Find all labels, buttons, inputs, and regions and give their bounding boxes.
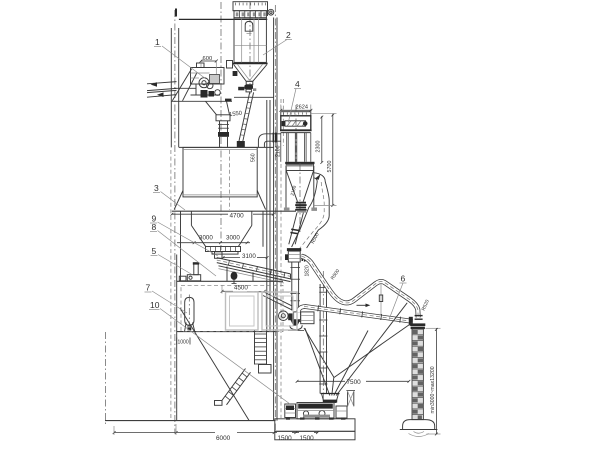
svg-text:5700: 5700: [327, 161, 333, 173]
svg-text:1500: 1500: [300, 435, 315, 442]
svg-text:4700: 4700: [230, 213, 245, 220]
svg-text:3000: 3000: [226, 235, 240, 242]
svg-text:600: 600: [203, 56, 213, 62]
svg-text:7500: 7500: [347, 379, 362, 386]
svg-text:560: 560: [251, 153, 257, 162]
svg-text:4: 4: [295, 79, 300, 89]
svg-text:1: 1: [155, 37, 160, 47]
svg-text:1500: 1500: [278, 435, 293, 442]
svg-text:3: 3: [154, 183, 159, 193]
svg-text:6000: 6000: [216, 435, 231, 442]
svg-text:5: 5: [152, 246, 157, 256]
svg-text:8: 8: [152, 222, 157, 232]
svg-text:1000: 1000: [178, 339, 189, 345]
svg-text:min3000~max13200: min3000~max13200: [430, 366, 436, 413]
svg-text:2: 2: [286, 30, 291, 40]
svg-text:1820: 1820: [305, 265, 311, 276]
svg-text:9: 9: [152, 214, 157, 224]
svg-text:3000: 3000: [199, 235, 213, 242]
svg-text:10: 10: [150, 300, 160, 310]
svg-text:2300: 2300: [315, 141, 321, 153]
svg-text:6: 6: [401, 274, 406, 284]
svg-text:2624: 2624: [296, 105, 308, 111]
svg-text:7: 7: [146, 283, 151, 293]
svg-text:3100: 3100: [242, 253, 256, 260]
